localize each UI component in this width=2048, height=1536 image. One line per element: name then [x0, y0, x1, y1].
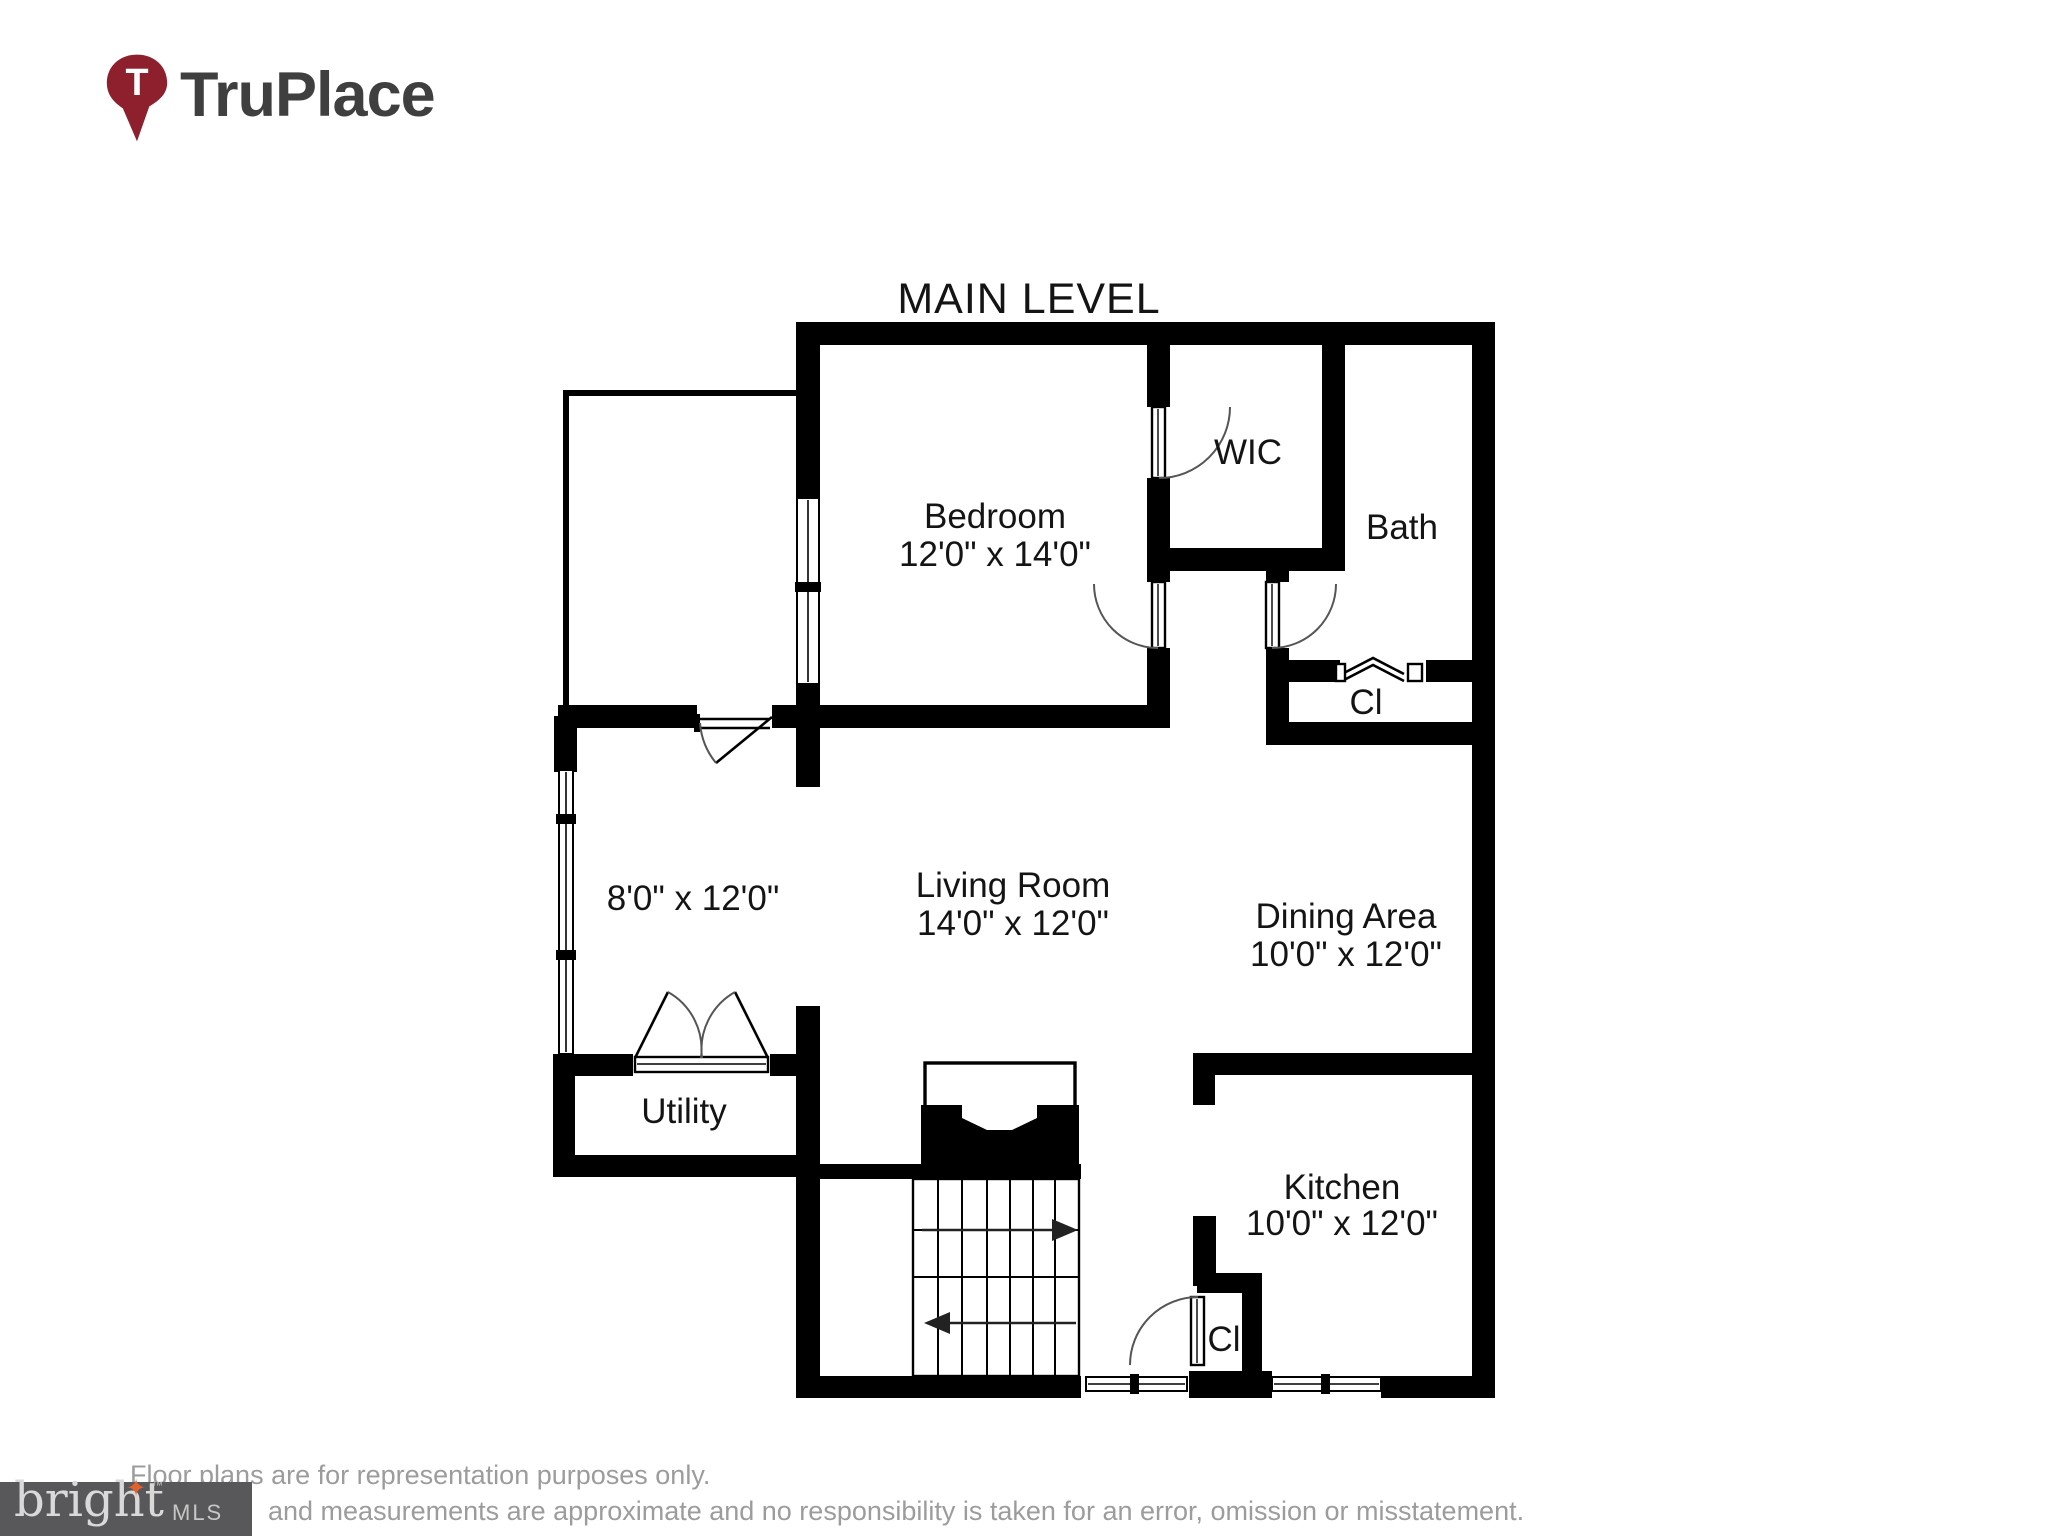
bedroom-window-divider: [795, 582, 821, 592]
wall-bedroom-east-a: [1147, 345, 1170, 407]
wall-utility-top-left: [553, 1054, 633, 1076]
wic-label: WIC: [1214, 433, 1282, 472]
hallcloset-bifold-outer: [1342, 665, 1404, 681]
wall-kitchencloset-right: [1242, 1273, 1262, 1376]
deck-door-leaf: [716, 717, 772, 763]
wall-kitchen-top: [1193, 1053, 1472, 1075]
sunroom-window-divider-2: [556, 950, 576, 960]
wall-utility-top-right: [770, 1054, 820, 1076]
wall-kitchen-entry-stub: [1193, 1075, 1215, 1105]
stair-upper-landing: [925, 1063, 1075, 1107]
bedroom-door-swing-arc: [1094, 584, 1158, 648]
utility-door-leaf-right: [735, 992, 768, 1058]
living-room-dims: 14'0" x 12'0": [917, 904, 1109, 943]
wall-hallcloset-top-right: [1426, 660, 1472, 682]
sunroom-dims: 8'0" x 12'0": [607, 879, 780, 918]
living-room-label: Living Room: [916, 866, 1111, 905]
kitchen-dims: 10'0" x 12'0": [1246, 1204, 1438, 1243]
stair-landing-edge: [818, 1164, 1081, 1179]
dining-area-label: Dining Area: [1256, 897, 1437, 936]
kitchen-label: Kitchen: [1284, 1168, 1401, 1207]
wall-bedroom-east-c: [1147, 648, 1170, 705]
bedroom-label: Bedroom: [924, 497, 1066, 536]
bright-mls-logo: bright ✦ ™ MLS: [0, 1482, 252, 1536]
wall-bottom-b: [1381, 1376, 1495, 1398]
wall-deck-left: [563, 390, 569, 710]
bedroom-dims: 12'0" x 14'0": [899, 535, 1091, 574]
floor-plan: MAIN LEVEL: [0, 0, 2048, 1536]
kitchen-closet-label: Cl: [1207, 1320, 1240, 1359]
wall-wic-bottom: [1147, 548, 1345, 571]
plan-title: MAIN LEVEL: [897, 275, 1160, 323]
utility-label: Utility: [641, 1092, 727, 1131]
dining-area-dims: 10'0" x 12'0": [1250, 935, 1442, 974]
page-background: T TruPlace MAIN LEVEL: [0, 0, 2048, 1536]
rear-window-left-divider: [1130, 1374, 1139, 1394]
wall-sunroom-corner: [554, 716, 577, 772]
wall-right: [1472, 322, 1495, 1398]
hallcloset-bifold-jamb-right: [1408, 664, 1422, 681]
wall-bottom-a: [796, 1376, 1081, 1398]
thin-walls: [563, 390, 808, 710]
utility-door-leaf-left: [635, 992, 668, 1058]
rear-window-right-divider: [1321, 1374, 1330, 1394]
wall-deck-top: [563, 390, 808, 396]
wall-bedroom-bottom: [772, 705, 1170, 728]
hallcloset-bifold-jamb-left: [1336, 664, 1345, 681]
wall-bedroom-west-stub: [796, 728, 820, 787]
hall-closet-label: Cl: [1349, 683, 1382, 722]
kitchencloset-door-swing-arc: [1130, 1297, 1198, 1365]
deck-door-jamb-left: [694, 714, 700, 732]
wall-hallcloset-top-left: [1285, 660, 1340, 682]
wall-sunroom-bottom: [558, 705, 697, 728]
sparkle-star-icon: ✦: [126, 1474, 146, 1503]
wall-top: [796, 322, 1495, 345]
utility-door-arc-left: [668, 992, 702, 1058]
wall-bedroom-west-upper: [796, 322, 820, 498]
trademark-symbol: ™: [152, 1480, 163, 1492]
bath-label: Bath: [1366, 508, 1438, 547]
wall-wic-bath-divider: [1322, 345, 1345, 548]
wall-bottom-closet-block: [1189, 1371, 1272, 1398]
wall-utility-bottom: [553, 1155, 820, 1177]
wall-hallcloset-bottom: [1266, 722, 1472, 745]
mls-wordmark: MLS: [172, 1500, 223, 1526]
utility-door-arc-right: [701, 992, 735, 1058]
staircase: [818, 1063, 1081, 1376]
bath-door-swing-arc: [1272, 584, 1336, 648]
disclaimer-line-2: and measurements are approximate and no …: [268, 1496, 1524, 1527]
sunroom-window-divider-1: [556, 814, 576, 824]
wall-bathdoor-stub: [1266, 560, 1289, 582]
